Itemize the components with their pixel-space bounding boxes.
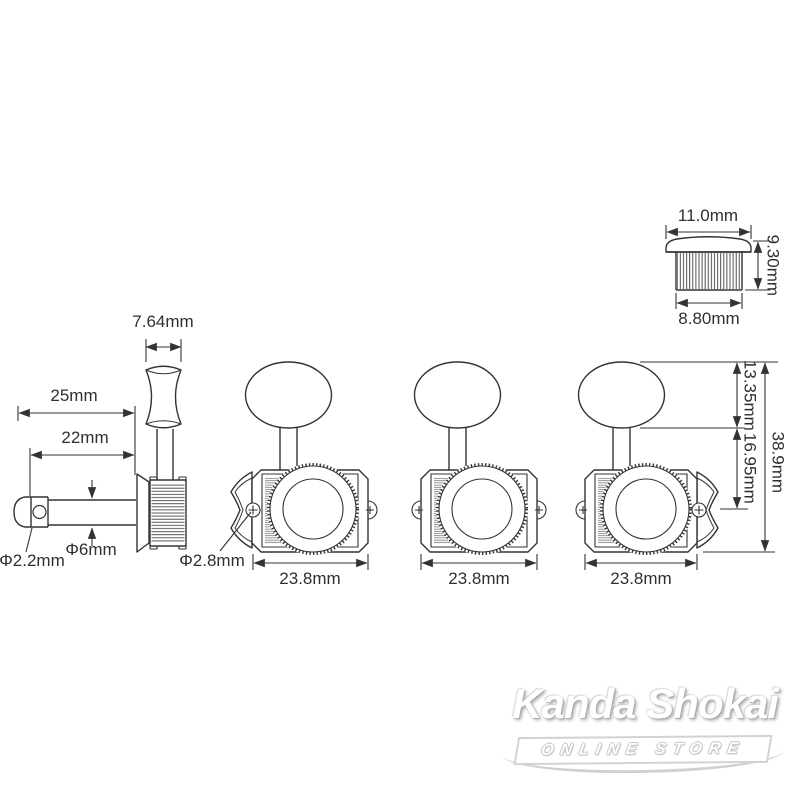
bushing-dome — [666, 237, 751, 252]
dim-button-height-label: 13.35mm — [740, 353, 759, 437]
bushing-knurl — [677, 253, 741, 289]
dim-screw-hole-diameter-label: Φ2.8mm — [170, 552, 254, 571]
front-view-tuner-2 — [412, 362, 546, 555]
technical-drawing-page: 7.64mm 25mm 22mm Φ6mm Φ2.2mm Φ2.8mm 23.8… — [0, 0, 800, 800]
string-hole — [33, 506, 46, 519]
knurled-wheel — [436, 463, 528, 555]
dim-string-hole-diameter-label: Φ2.2mm — [0, 552, 74, 571]
dim-overall-height-label: 38.9mm — [768, 420, 787, 504]
button — [415, 362, 501, 428]
dim-housing-width-3-label: 23.8mm — [599, 570, 683, 589]
knurled-wheel — [600, 463, 692, 555]
right-screw — [692, 503, 706, 517]
bushing-drawing — [666, 237, 751, 290]
front-view-tuner-1 — [231, 362, 377, 555]
dim-overall-post-length-label: 25mm — [32, 387, 116, 406]
dim-housing-width-2-label: 23.8mm — [437, 570, 521, 589]
dim-bushing-height-label: 9.30mm — [763, 223, 782, 307]
side-view-button — [146, 366, 181, 428]
dim-housing-width-1-label: 23.8mm — [268, 570, 352, 589]
watermark-brand: Kanda Shokai — [500, 680, 790, 728]
dim-bushing-top-diameter-label: 11.0mm — [666, 207, 750, 226]
knurled-wheel — [267, 463, 359, 555]
watermark-banner: ONLINE STORE — [513, 735, 772, 765]
dim-housing-height-label: 16.95mm — [740, 426, 759, 510]
button — [579, 362, 665, 428]
side-view-plate — [137, 474, 149, 552]
front-view-tuner-3 — [576, 362, 718, 555]
kanda-shokai-watermark: Kanda Shokai ONLINE STORE — [500, 680, 790, 790]
stem — [613, 428, 630, 470]
side-view-stem — [157, 429, 173, 481]
stem — [280, 428, 297, 470]
side-view-string-post — [14, 497, 136, 527]
side-view-housing — [150, 477, 186, 549]
dim-button-width-label: 7.64mm — [121, 313, 205, 332]
button — [246, 362, 332, 428]
watermark-subtitle: ONLINE STORE — [539, 740, 746, 760]
dim-bushing-body-diameter-label: 8.80mm — [667, 310, 751, 329]
dim-post-length-label: 22mm — [43, 429, 127, 448]
stem — [449, 428, 466, 470]
